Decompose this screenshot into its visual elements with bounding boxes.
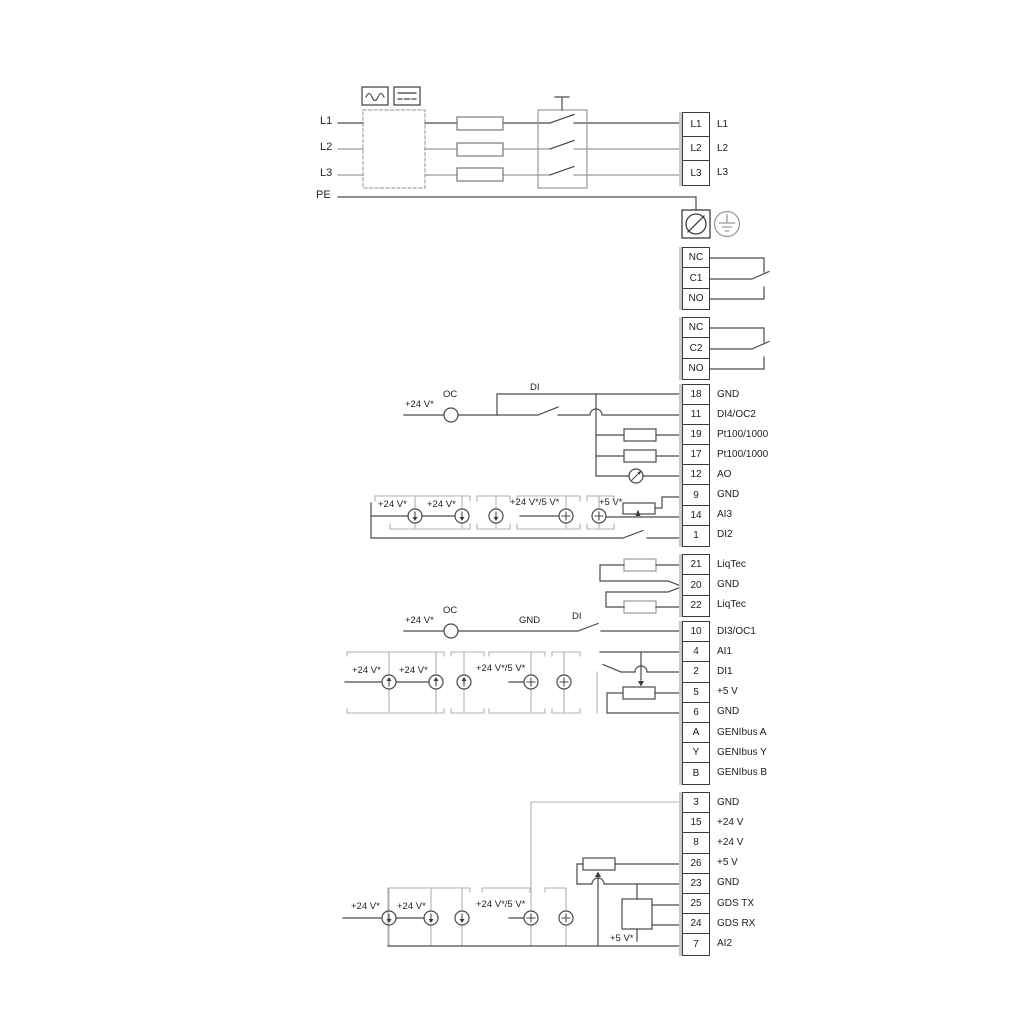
relay-contacts: [710, 258, 769, 369]
liqtec-sensor-icon: [624, 601, 656, 613]
terminal-boxes: NC C1 NO: [682, 247, 710, 310]
label-oc: OC: [443, 389, 457, 400]
terminal-label: AI2: [717, 933, 755, 953]
terminal-cell: 9: [683, 485, 709, 505]
terminal-cell: C1: [683, 268, 709, 288]
earth-ground-icon: [715, 212, 740, 237]
terminal-cell: 8: [683, 833, 709, 853]
terminal-cell: 19: [683, 425, 709, 445]
terminal-number: A: [693, 727, 700, 738]
terminal-number: C2: [690, 343, 703, 354]
terminal-label: DI1: [717, 661, 767, 681]
terminal-cell: 2: [683, 662, 709, 682]
label-plus24v: +24 V*: [352, 665, 381, 676]
terminal-number: 15: [690, 817, 701, 828]
terminal-boxes: 18 11 19 17 12 9 14 1: [682, 384, 710, 547]
terminal-label: GND: [717, 873, 755, 893]
terminal-cell: NC: [683, 248, 709, 268]
terminal-number: NC: [689, 252, 703, 263]
terminal-cell: 11: [683, 405, 709, 425]
terminal-cell: L1: [683, 113, 709, 137]
terminal-cell: 7: [683, 934, 709, 954]
label-plus24v: +24 V*: [405, 399, 434, 410]
phase-label-l1: L1: [320, 115, 332, 127]
potentiometer-icon: [583, 858, 615, 870]
open-collector-icon: [444, 624, 458, 638]
label-plus24v: +24 V*: [427, 499, 456, 510]
mains-terminal-block: L1 L2 L3 L1 L2 L3: [682, 112, 728, 186]
label-plus24v: +24 V*: [399, 665, 428, 676]
terminal-number: 4: [693, 646, 699, 657]
terminal-label: GND: [717, 574, 746, 594]
terminal-number: NC: [689, 322, 703, 333]
terminal-cell: 3: [683, 793, 709, 813]
label-plus24v: +24 V*: [378, 499, 407, 510]
terminal-labels: GND DI4/OC2 Pt100/1000 Pt100/1000 AO GND…: [717, 384, 768, 545]
terminal-cell: 24: [683, 914, 709, 934]
label-di: DI: [530, 382, 540, 393]
gds-sensor-icon: [622, 899, 652, 929]
label-plus5v: +5 V*: [599, 497, 623, 508]
terminal-cell: 12: [683, 465, 709, 485]
terminal-label: L2: [717, 136, 728, 160]
terminal-labels: L1 L2 L3: [717, 112, 728, 184]
terminal-cell: 5: [683, 683, 709, 703]
terminal-label: GND: [717, 792, 755, 812]
liqtec-section: [600, 559, 682, 613]
terminal-cell: L2: [683, 137, 709, 161]
terminal-number: 17: [690, 449, 701, 460]
terminal-label: GND: [717, 484, 768, 504]
terminal-number: 18: [690, 389, 701, 400]
fuse-icon: [457, 117, 503, 181]
wiring-diagram-canvas: L1 L2 L3 PE +24 V* OC DI +24 V* +24 V* +…: [0, 0, 1024, 1024]
terminal-number: L2: [690, 143, 701, 154]
terminal-number: L3: [690, 168, 701, 179]
terminal-boxes: 10 4 2 5 6 A Y B: [682, 621, 710, 785]
terminal-boxes: L1 L2 L3: [682, 112, 710, 186]
terminal-number: 5: [693, 687, 699, 698]
terminal-cell: 14: [683, 506, 709, 526]
terminal-number: 7: [693, 939, 699, 950]
terminal-label: +5 V: [717, 853, 755, 873]
phase-label-pe: PE: [316, 189, 331, 201]
terminal-label: DI3/OC1: [717, 621, 767, 641]
phase-label-l2: L2: [320, 141, 332, 153]
label-gnd: GND: [519, 615, 540, 626]
ac-symbol-icon: [362, 87, 388, 105]
label-plus24v: +24 V*: [351, 901, 380, 912]
terminal-label: GENIbus B: [717, 762, 767, 782]
terminal-label: L3: [717, 160, 728, 184]
label-di: DI: [572, 611, 582, 622]
terminal-boxes: NC C2 NO: [682, 317, 710, 380]
terminal-cell: 18: [683, 385, 709, 405]
pt-sensor-icon: [624, 429, 656, 441]
terminal-cell: 1: [683, 526, 709, 546]
liqtec-sensor-icon: [624, 559, 656, 571]
terminal-number: 12: [690, 469, 701, 480]
pe-screw-terminal-icon: [682, 210, 710, 238]
label-plus24v-5v: +24 V*/5 V*: [476, 663, 525, 674]
terminal-cell: 20: [683, 575, 709, 595]
wiring-layer: [0, 0, 1024, 1024]
io-section-3: [343, 802, 682, 946]
disconnect-switch-icon: [538, 97, 587, 188]
terminal-label: AI3: [717, 505, 768, 525]
io-terminal-strip-3: 3 15 8 26 23 25 24 7 GND +24 V +24 V +5 …: [682, 792, 755, 956]
terminal-cell: L3: [683, 161, 709, 185]
terminal-cell: 21: [683, 555, 709, 575]
terminal-number: B: [693, 768, 700, 779]
terminal-cell: B: [683, 763, 709, 783]
terminal-number: 23: [690, 878, 701, 889]
terminal-cell: 15: [683, 813, 709, 833]
liqtec-terminal-strip: 21 20 22 LiqTec GND LiqTec: [682, 554, 746, 617]
terminal-labels: GND +24 V +24 V +5 V GND GDS TX GDS RX A…: [717, 792, 755, 954]
terminal-label: GDS RX: [717, 913, 755, 933]
terminal-number: 6: [693, 707, 699, 718]
terminal-number: Y: [693, 747, 700, 758]
terminal-cell: 10: [683, 622, 709, 642]
terminal-label: Pt100/1000: [717, 424, 768, 444]
label-plus24v-5v: +24 V*/5 V*: [476, 899, 525, 910]
terminal-cell: 23: [683, 874, 709, 894]
terminal-cell: NO: [683, 289, 709, 309]
filter-box: [363, 110, 425, 188]
open-collector-icon: [444, 408, 458, 422]
terminal-label: GND: [717, 702, 767, 722]
terminal-cell: 25: [683, 894, 709, 914]
terminal-boxes: 21 20 22: [682, 554, 710, 617]
terminal-number: 21: [690, 559, 701, 570]
terminal-cell: Y: [683, 743, 709, 763]
terminal-label: GENIbus A: [717, 722, 767, 742]
label-oc: OC: [443, 605, 457, 616]
io-section-1: [371, 394, 682, 538]
terminal-cell: A: [683, 723, 709, 743]
terminal-label: AO: [717, 464, 768, 484]
relay2-terminal-block: NC C2 NO: [682, 317, 710, 380]
terminal-number: 10: [690, 626, 701, 637]
label-plus5v: +5 V*: [610, 933, 634, 944]
terminal-label: LiqTec: [717, 554, 746, 574]
terminal-number: 25: [690, 898, 701, 909]
terminal-number: 11: [691, 409, 701, 420]
terminal-number: 8: [693, 837, 699, 848]
terminal-cell: 17: [683, 445, 709, 465]
terminal-cell: 4: [683, 642, 709, 662]
terminal-label: L1: [717, 112, 728, 136]
terminal-number: 20: [690, 580, 701, 591]
terminal-number: 9: [693, 490, 699, 501]
terminal-number: C1: [690, 273, 703, 284]
terminal-number: 14: [690, 510, 701, 521]
terminal-number: 26: [690, 858, 701, 869]
relay1-terminal-block: NC C1 NO: [682, 247, 710, 310]
terminal-number: NO: [689, 363, 704, 374]
terminal-cell: NO: [683, 359, 709, 379]
label-plus24v: +24 V*: [405, 615, 434, 626]
terminal-number: 2: [693, 666, 699, 677]
terminal-label: +5 V: [717, 682, 767, 702]
terminal-number: NO: [689, 293, 704, 304]
terminal-label: DI4/OC2: [717, 404, 768, 424]
terminal-number: 3: [693, 797, 699, 808]
terminal-cell: NC: [683, 318, 709, 338]
terminal-cell: C2: [683, 338, 709, 358]
terminal-label: GENIbus Y: [717, 742, 767, 762]
terminal-cell: 22: [683, 596, 709, 616]
terminal-label: DI2: [717, 525, 768, 545]
terminal-cell: 6: [683, 703, 709, 723]
label-plus24v: +24 V*: [397, 901, 426, 912]
phase-label-l3: L3: [320, 167, 332, 179]
terminal-number: L1: [690, 119, 701, 130]
terminal-boxes: 3 15 8 26 23 25 24 7: [682, 792, 710, 956]
terminal-label: AI1: [717, 641, 767, 661]
terminal-labels: LiqTec GND LiqTec: [717, 554, 746, 615]
pt-sensor-icon: [624, 450, 656, 462]
io-terminal-strip-2: 10 4 2 5 6 A Y B DI3/OC1 AI1 DI1 +5 V GN…: [682, 621, 767, 785]
terminal-number: 1: [693, 530, 699, 541]
terminal-label: GDS TX: [717, 893, 755, 913]
terminal-number: 22: [690, 600, 701, 611]
potentiometer-icon: [623, 687, 655, 699]
terminal-label: +24 V: [717, 812, 755, 832]
terminal-label: LiqTec: [717, 595, 746, 615]
dc-symbol-icon: [394, 87, 420, 105]
terminal-label: Pt100/1000: [717, 444, 768, 464]
terminal-cell: 26: [683, 854, 709, 874]
terminal-number: 24: [690, 918, 701, 929]
io-terminal-strip-1: 18 11 19 17 12 9 14 1 GND DI4/OC2 Pt100/…: [682, 384, 768, 547]
terminal-labels: DI3/OC1 AI1 DI1 +5 V GND GENIbus A GENIb…: [717, 621, 767, 783]
ai3-option-brackets: [375, 496, 614, 529]
terminal-label: GND: [717, 384, 768, 404]
phase-wires: [338, 123, 696, 210]
terminal-label: +24 V: [717, 832, 755, 852]
label-plus24v-5v: +24 V*/5 V*: [510, 497, 559, 508]
power-input-section: [338, 87, 740, 238]
terminal-number: 19: [690, 429, 701, 440]
